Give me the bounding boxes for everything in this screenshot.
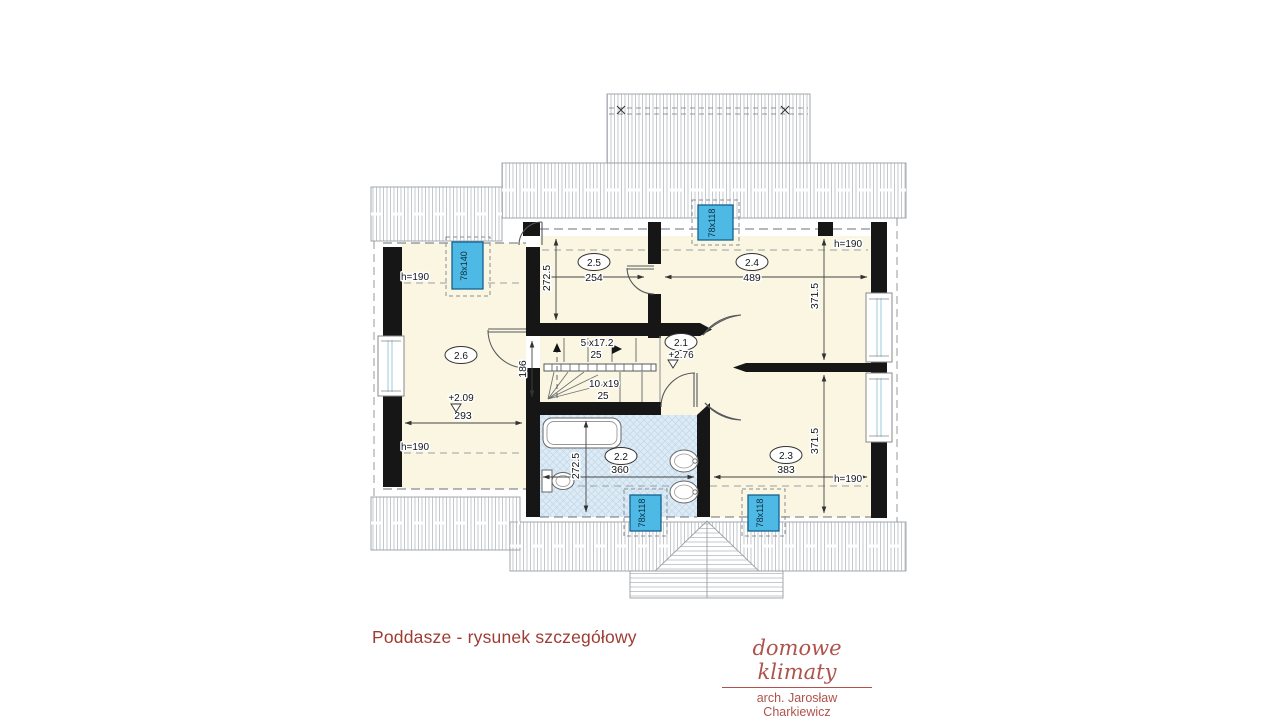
room-25-tag: 2.5 — [578, 254, 610, 271]
knee-label-left-bottom: h=190 — [401, 442, 430, 453]
wall-24-23 — [746, 363, 871, 372]
wall-bath-right — [697, 415, 710, 517]
room-24-label: 2.4 — [745, 258, 759, 269]
porch-roof — [630, 571, 783, 598]
dormer-roof-top — [607, 94, 810, 163]
dim-25-height: 272.5 — [541, 265, 553, 291]
room-23-label: 2.3 — [779, 451, 793, 462]
wall-pier-top-2 — [648, 222, 661, 236]
stair-upper-tread-label: 25 — [590, 350, 602, 361]
dim-22-height: 272.5 — [570, 453, 582, 479]
bathtub — [543, 418, 621, 448]
knee-label-left-top: h=190 — [401, 272, 430, 283]
stair-lower-steps-label: 10 x19 — [589, 379, 619, 390]
dim-24-width: 489 — [743, 272, 761, 284]
room-21-label: 2.1 — [674, 338, 688, 349]
skylight-bottom-right: 78x118 — [742, 489, 785, 536]
wall-left-upper — [383, 247, 402, 340]
dim-25-width: 254 — [585, 272, 603, 284]
dim-landing: 186 — [517, 360, 529, 378]
window-right-lower — [866, 373, 892, 442]
skylight-bath-label: 78x118 — [637, 499, 647, 528]
drawing-title: Poddasze - rysunek szczegółowy — [372, 627, 637, 648]
room-24-tag: 2.4 — [736, 254, 768, 271]
skylight-left-label: 78x140 — [459, 251, 469, 281]
logo-architect: arch. Jarosław Charkiewicz — [722, 691, 872, 719]
room-25-label: 2.5 — [587, 258, 601, 269]
room-26-level: +2.09 — [448, 393, 474, 404]
skylight-bath: 78x118 — [624, 489, 667, 536]
skylight-top-label: 78x118 — [707, 209, 717, 238]
floor-plan-canvas: 5 x17.2 25 10 x19 25 — [0, 0, 1280, 720]
wall-pier-top-3 — [818, 222, 833, 236]
wall-A-upper — [526, 247, 540, 330]
wall-A-lower — [526, 368, 540, 517]
room-21-level: +2.76 — [668, 350, 694, 361]
sink-2-tap — [693, 490, 697, 494]
wall-left-lower — [383, 393, 402, 487]
wall-right-lower — [871, 440, 887, 518]
sink-1-tap — [693, 459, 697, 463]
logo-brand: domowe klimaty — [722, 636, 872, 688]
skylight-left: 78x140 — [446, 237, 490, 296]
window-left — [378, 336, 404, 396]
skylight-top: 78x118 — [692, 200, 739, 245]
stair-upper-steps-label: 5 x17.2 — [581, 338, 614, 349]
room-22-label: 2.2 — [614, 452, 628, 463]
studio-logo: domowe klimaty arch. Jarosław Charkiewic… — [722, 636, 872, 719]
window-right-upper — [866, 293, 892, 362]
wall-right-upper — [871, 222, 887, 297]
floor-plan-page: 5 x17.2 25 10 x19 25 — [0, 0, 1280, 720]
room-23-tag: 2.3 — [770, 447, 802, 464]
dim-22-width: 360 — [611, 464, 629, 476]
dim-26-width: 293 — [454, 410, 472, 422]
room-22-tag: 2.2 — [605, 448, 637, 465]
dim-23-height: 371.5 — [809, 428, 821, 454]
knee-label-right-top: h=190 — [834, 239, 863, 250]
wall-B-upper — [648, 236, 661, 264]
wall-bath-top — [540, 402, 661, 415]
knee-label-right-bottom: h=190 — [834, 474, 863, 485]
dim-23-width: 383 — [777, 464, 795, 476]
toilet-tank — [542, 470, 552, 492]
stair-lower-tread-label: 25 — [597, 391, 609, 402]
room-26-label: 2.6 — [454, 351, 468, 362]
skylight-bottom-right-label: 78x118 — [755, 499, 765, 528]
dim-24-height: 371.5 — [809, 283, 821, 309]
